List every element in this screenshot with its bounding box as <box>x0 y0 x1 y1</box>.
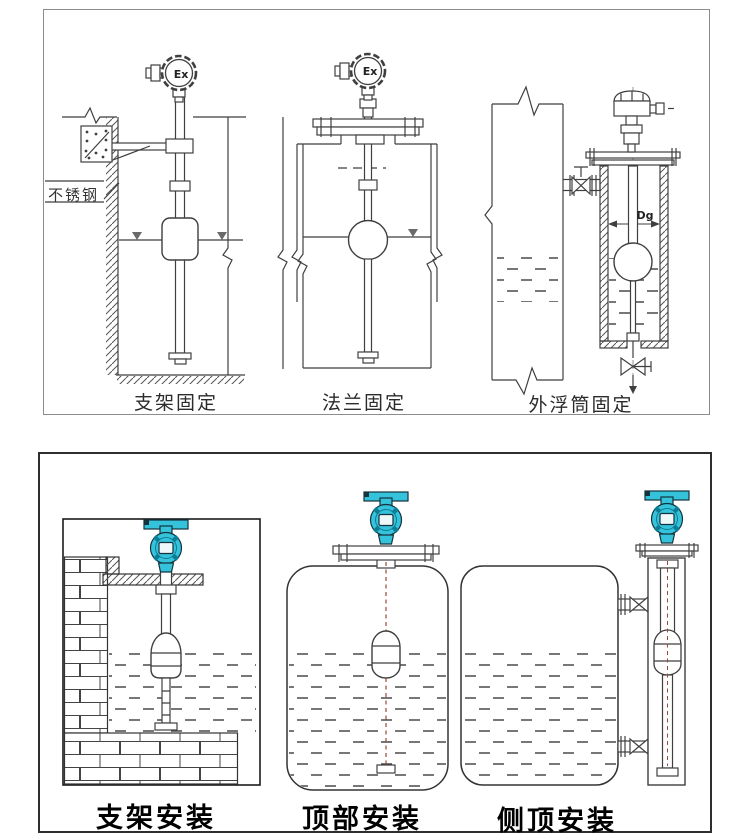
diagram-canvas: Ex Ex Dg <box>0 0 750 840</box>
top-mount-diagram <box>287 492 448 790</box>
diagram-label-flange-fixing: 法兰固定 <box>314 388 414 415</box>
flange-fixing-diagram <box>292 54 442 368</box>
diagram-label-bracket-fixing: 支架固定 <box>126 388 226 415</box>
diagram-label-external-chamber-fixing: 外浮筒固定 <box>516 390 646 417</box>
stainless-steel-label: 不锈钢 <box>48 184 106 205</box>
diagram-label-top-mount: 顶部安装 <box>296 797 428 836</box>
float-ball <box>614 243 652 281</box>
ex-marking-label: Ex <box>363 65 378 78</box>
bracket-mount-diagram <box>63 519 260 785</box>
float-body <box>162 218 198 260</box>
diameter-label: Dg <box>636 209 653 222</box>
smart-transmitter-head-icon <box>364 492 408 544</box>
side-top-mount-diagram <box>461 491 698 785</box>
bracket-fixing-diagram <box>45 56 287 384</box>
diagram-label-bracket-mount: 支架安装 <box>90 796 222 835</box>
diagram-label-side-top-mount: 侧顶安装 <box>491 799 623 838</box>
float-body <box>151 633 181 678</box>
float-body <box>372 631 400 678</box>
external-chamber-fixing-diagram <box>485 87 680 394</box>
junction-box-transmitter-icon <box>614 91 674 152</box>
ex-transmitter-head-icon <box>335 54 385 100</box>
ex-marking-label: Ex <box>174 68 189 81</box>
smart-transmitter-head-icon <box>645 491 689 543</box>
float-ball <box>349 221 388 260</box>
ex-transmitter-head-icon <box>146 56 196 102</box>
